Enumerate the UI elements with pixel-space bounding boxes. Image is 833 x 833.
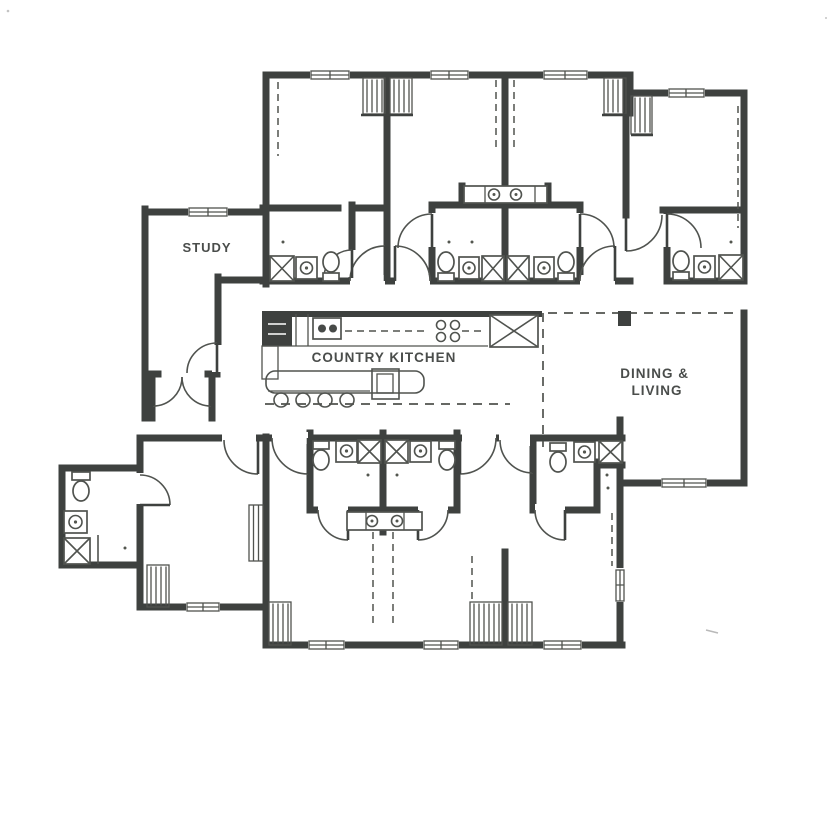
kitchen-label: COUNTRY KITCHEN [312, 350, 457, 365]
refrigerator-icon [490, 315, 538, 347]
entry-door-arc [182, 377, 211, 406]
window [309, 641, 344, 649]
shower-icon [358, 440, 381, 463]
shower-icon [270, 256, 294, 281]
sink-icon [336, 441, 357, 462]
sink-icon [410, 441, 431, 462]
floor-plan-page: STUDY COUNTRY KITCHEN DINING & LIVING [0, 0, 833, 833]
closet [631, 96, 652, 134]
kitchen-counter-return [262, 346, 278, 379]
window [662, 479, 706, 487]
sink-icon [694, 256, 715, 279]
sink-icon [296, 257, 317, 279]
toilet-icon [72, 472, 90, 501]
sink-icon [64, 511, 87, 533]
window [189, 208, 227, 216]
toilet-icon [438, 252, 454, 281]
sink-icon [574, 442, 595, 462]
window [187, 603, 219, 611]
toilet-icon [323, 252, 339, 281]
toilet-icon [673, 251, 689, 280]
stool-icon [274, 393, 288, 407]
shower-icon [385, 440, 408, 463]
kitchen-island [266, 369, 424, 407]
vanity-counter [347, 512, 422, 530]
kitchen-cabinet-block [262, 315, 292, 346]
stool-icon [318, 393, 332, 407]
shower-icon [64, 538, 90, 564]
toilet-icon [558, 252, 574, 281]
sink-icon [534, 257, 554, 279]
toilet-icon [439, 441, 455, 470]
range-burners-icon [437, 321, 460, 342]
window [424, 641, 458, 649]
shower-icon [507, 256, 529, 281]
door-arc [224, 440, 258, 474]
shower-icon [599, 441, 622, 463]
vanity-counter [464, 186, 547, 203]
floor-plan: STUDY COUNTRY KITCHEN DINING & LIVING [0, 0, 833, 833]
window [669, 89, 704, 97]
column [618, 311, 631, 326]
stool-icon [340, 393, 354, 407]
window [431, 71, 468, 79]
cooktop-icon [313, 318, 341, 339]
study-label: STUDY [182, 240, 231, 255]
sink-icon [459, 257, 479, 279]
window [311, 71, 349, 79]
stool-icon [296, 393, 310, 407]
shower-icon [482, 256, 504, 281]
toilet-icon [313, 441, 329, 470]
window [616, 570, 624, 601]
window [544, 71, 587, 79]
door-arc [626, 215, 662, 251]
toilet-icon [550, 443, 566, 472]
dining-living-label: DINING & LIVING [620, 366, 694, 398]
entry-door-arc [153, 377, 182, 406]
shower-icon [719, 255, 743, 280]
window [544, 641, 581, 649]
closet [470, 602, 502, 645]
closet-bifold [249, 505, 263, 561]
